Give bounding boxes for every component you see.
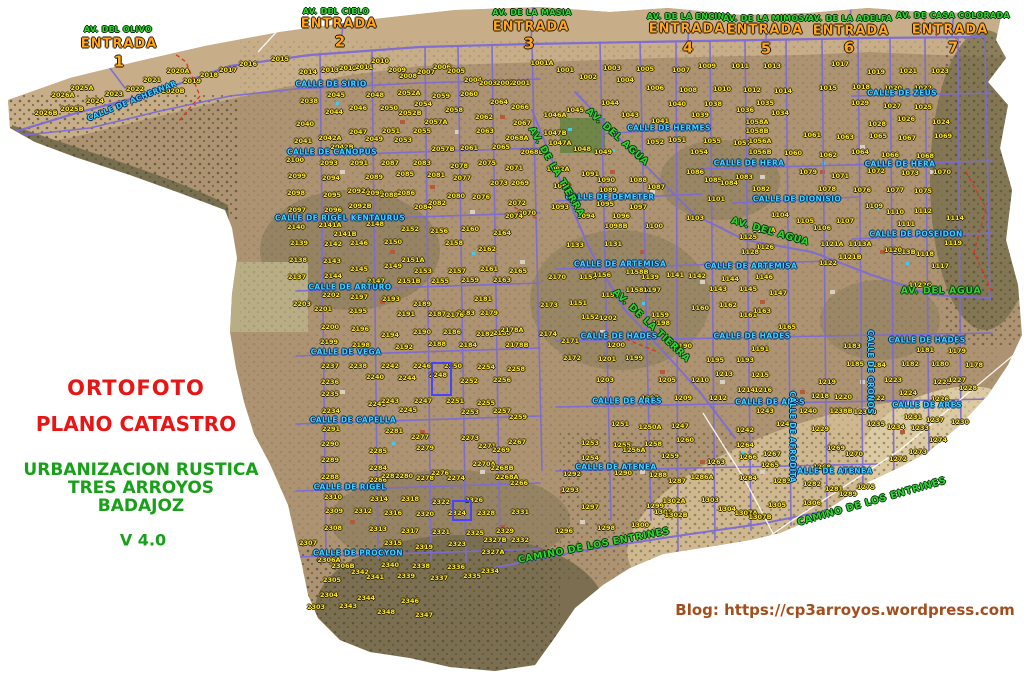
parcel-number: 1151 bbox=[569, 300, 587, 307]
parcel-number: 2322 bbox=[432, 499, 450, 506]
parcel-number: 1181 bbox=[916, 347, 934, 354]
parcel-number: 1036 bbox=[736, 107, 754, 114]
parcel-number: 1178 bbox=[965, 362, 983, 369]
street-name-label: CALLE DE CRONOS bbox=[866, 330, 874, 414]
parcel-number: 1058A bbox=[745, 119, 768, 126]
parcel-number: 1133 bbox=[566, 242, 584, 249]
parcel-number: 2137 bbox=[288, 274, 306, 281]
parcel-number: 1300 bbox=[631, 522, 649, 529]
street-name-label: CALLE DE ZEUS bbox=[867, 89, 937, 97]
parcel-number: 2083 bbox=[413, 160, 431, 167]
parcel-number: 1165 bbox=[778, 324, 796, 331]
parcel-number: 1019 bbox=[867, 69, 885, 76]
parcel-number: 1073 bbox=[901, 170, 919, 177]
parcel-number: 1029 bbox=[851, 100, 869, 107]
parcel-number: 1289 bbox=[839, 491, 857, 498]
parcel-number: 2019 bbox=[183, 78, 201, 85]
parcel-number: 2303 bbox=[307, 604, 325, 611]
parcel-number: 2076 bbox=[472, 194, 490, 201]
parcel-number: 1083 bbox=[735, 174, 753, 181]
parcel-number: 1047B bbox=[543, 130, 566, 137]
parcel-number: 1095 bbox=[596, 201, 614, 208]
parcel-number: 1234 bbox=[887, 424, 905, 431]
parcel-number: 2255 bbox=[477, 400, 495, 407]
parcel-number: 1003 bbox=[603, 65, 621, 72]
parcel-number: 1197 bbox=[643, 287, 661, 294]
parcel-number: 1056B bbox=[748, 149, 771, 156]
parcel-number: 1082 bbox=[752, 186, 770, 193]
parcel-number: 2017 bbox=[219, 67, 237, 74]
street-name-label: CALLE DE VEGA bbox=[311, 348, 382, 356]
parcel-number: 2054 bbox=[414, 101, 432, 108]
parcel-number: 2331 bbox=[511, 509, 529, 516]
parcel-number: 2057A bbox=[424, 119, 447, 126]
parcel-number: 1210 bbox=[691, 377, 709, 384]
parcel-number: 2327B bbox=[483, 537, 506, 544]
parcel-number: 1191 bbox=[751, 346, 769, 353]
parcel-number: 1201 bbox=[598, 356, 616, 363]
parcel-number: 1199 bbox=[625, 355, 643, 362]
parcel-number: 2289 bbox=[321, 457, 339, 464]
street-name-label: CALLE DE AFRODITA bbox=[788, 391, 796, 483]
parcel-number: 1296 bbox=[555, 528, 573, 535]
parcel-number: 2058 bbox=[445, 107, 463, 114]
parcel-number: 1076 bbox=[853, 187, 871, 194]
parcel-number: 2184 bbox=[459, 342, 477, 349]
street-name-label: CALLE DE ATENEA bbox=[791, 467, 872, 475]
parcel-number: 1034 bbox=[771, 110, 789, 117]
parcel-number: 2188 bbox=[428, 341, 446, 348]
parcel-number: 1237 bbox=[926, 417, 944, 424]
parcel-number: 1253 bbox=[581, 440, 599, 447]
parcel-number: 2320 bbox=[416, 511, 434, 518]
parcel-number: 2151B bbox=[397, 278, 420, 285]
entrance-label: ENTRADA bbox=[493, 21, 570, 34]
street-name-label: CALLE DE ARTEMISA bbox=[574, 260, 666, 268]
parcel-number: 1039 bbox=[691, 112, 709, 119]
parcel-number: 2098 bbox=[287, 190, 305, 197]
entrance-avenue-name: AV. DE LA ENCINA bbox=[647, 13, 731, 21]
parcel-number: 2141B bbox=[333, 231, 356, 238]
parcel-number: 2091 bbox=[350, 160, 368, 167]
entrance-label: ENTRADA bbox=[301, 18, 378, 31]
parcel-number: 1078 bbox=[818, 186, 836, 193]
parcel-number: 2197 bbox=[350, 294, 368, 301]
parcel-number: 2149 bbox=[384, 263, 402, 270]
parcel-number: 2048 bbox=[366, 92, 384, 99]
parcel-number: 2151A bbox=[401, 257, 424, 264]
parcel-number: 2100 bbox=[286, 157, 304, 164]
parcel-number: 2139 bbox=[290, 240, 308, 247]
parcel-number: 2343 bbox=[339, 603, 357, 610]
parcel-number: 2336 bbox=[447, 564, 465, 571]
parcel-number: 1160 bbox=[691, 305, 709, 312]
parcel-number: 1218 bbox=[811, 393, 829, 400]
parcel-number: 2335 bbox=[463, 573, 481, 580]
parcel-number: 2199 bbox=[320, 339, 338, 346]
parcel-number: 1269 bbox=[827, 445, 845, 452]
parcel-number: 1112 bbox=[914, 208, 932, 215]
parcel-number: 2312 bbox=[354, 508, 372, 515]
parcel-number: 1025 bbox=[914, 104, 932, 111]
parcel-number: 1265 bbox=[761, 462, 779, 469]
parcel-number: 2044 bbox=[325, 109, 343, 116]
parcel-number: 2150 bbox=[384, 239, 402, 246]
parcel-number: 1064 bbox=[851, 149, 869, 156]
parcel-number: 2274 bbox=[447, 475, 465, 482]
parcel-number: 2023 bbox=[105, 91, 123, 98]
parcel-number: 1086 bbox=[686, 169, 704, 176]
parcel-number: 1304 bbox=[718, 506, 736, 513]
parcel-number: 1306 bbox=[803, 500, 821, 507]
street-name-label: CALLE DE ARTURO bbox=[308, 283, 391, 291]
parcel-number: 2244 bbox=[398, 375, 416, 382]
parcel-number: 1302A bbox=[662, 498, 685, 505]
entrance-avenue-name: AV. DEL CIELO bbox=[303, 8, 369, 16]
parcel-number: 2304 bbox=[320, 592, 338, 599]
parcel-number: 2067 bbox=[513, 120, 531, 127]
parcel-number: 2041 bbox=[294, 138, 312, 145]
parcel-number: 2086 bbox=[397, 190, 415, 197]
parcel-number: 2191 bbox=[397, 311, 415, 318]
street-name-label: CALLE DE HERA bbox=[865, 160, 936, 168]
parcel-number: 2269 bbox=[492, 447, 510, 454]
entrance-number: 7 bbox=[948, 41, 958, 56]
parcel-number: 2281 bbox=[385, 428, 403, 435]
parcel-number: 1298 bbox=[597, 525, 615, 532]
parcel-number: 1096 bbox=[612, 213, 630, 220]
parcel-number: 1179 bbox=[948, 348, 966, 355]
parcel-number: 1048 bbox=[573, 146, 591, 153]
parcel-number: 1038 bbox=[704, 101, 722, 108]
parcel-number: 2237 bbox=[321, 363, 339, 370]
parcel-number: 2142 bbox=[324, 241, 342, 248]
parcel-number: 2176 bbox=[446, 312, 464, 319]
parcel-number: 2161 bbox=[480, 266, 498, 273]
parcel-number: 1159 bbox=[651, 312, 669, 319]
parcel-number: 2285 bbox=[369, 448, 387, 455]
parcel-number: 2157 bbox=[448, 268, 466, 275]
parcel-number: 2309 bbox=[325, 508, 343, 515]
parcel-number: 2339 bbox=[397, 573, 415, 580]
parcel-number: 1145 bbox=[739, 286, 757, 293]
parcel-number: 1273 bbox=[909, 449, 927, 456]
parcel-number: 2141A bbox=[318, 222, 341, 229]
parcel-number: 1060 bbox=[784, 150, 802, 157]
parcel-number: 1122 bbox=[819, 260, 837, 267]
street-name-label: CALLE DE ATENEA bbox=[575, 463, 656, 471]
street-name-label: CALLE DE RIGEL KENTAURUS bbox=[275, 214, 405, 222]
parcel-number: 2314 bbox=[370, 496, 388, 503]
parcel-number: 2025B bbox=[60, 106, 83, 113]
parcel-number: 2307 bbox=[299, 540, 317, 547]
parcel-number: 2145 bbox=[350, 266, 368, 273]
parcel-number: 1141 bbox=[666, 272, 684, 279]
parcel-number: 1264 bbox=[736, 442, 754, 449]
parcel-number: 2323 bbox=[448, 541, 466, 548]
parcel-number: 1017 bbox=[831, 61, 849, 68]
parcel-number: 1214 bbox=[737, 387, 755, 394]
parcel-number: 1243 bbox=[756, 408, 774, 415]
parcel-number: 2152 bbox=[401, 226, 419, 233]
parcel-number: 1098B bbox=[604, 223, 627, 230]
parcel-number: 1103 bbox=[686, 215, 704, 222]
street-name-label: CALLE DE CAPELLA bbox=[310, 416, 396, 424]
parcel-number: 2075 bbox=[478, 160, 496, 167]
parcel-number: 2159 bbox=[461, 277, 479, 284]
parcel-number: 1088 bbox=[629, 177, 647, 184]
parcel-number: 1023 bbox=[931, 68, 949, 75]
parcel-number: 2266 bbox=[510, 480, 528, 487]
parcel-number: 1055 bbox=[703, 138, 721, 145]
parcel-number: 2178A bbox=[500, 327, 523, 334]
parcel-number: 1163 bbox=[753, 308, 771, 315]
parcel-number: 1105 bbox=[796, 218, 814, 225]
parcel-number: 2245 bbox=[399, 407, 417, 414]
parcel-number: 1043 bbox=[621, 112, 639, 119]
parcel-number: 2284 bbox=[369, 465, 387, 472]
parcel-number: 2291 bbox=[322, 426, 340, 433]
parcel-number: 2026A bbox=[51, 92, 74, 99]
parcel-number: 1200 bbox=[607, 342, 625, 349]
parcel-number: 2021 bbox=[143, 77, 161, 84]
parcel-number: 1011 bbox=[731, 63, 749, 70]
parcel-number: 1202 bbox=[599, 315, 617, 322]
parcel-number: 1046A bbox=[543, 112, 566, 119]
parcel-number: 1209 bbox=[674, 395, 692, 402]
parcel-number: 2153 bbox=[414, 268, 432, 275]
parcel-number: 1274 bbox=[929, 437, 947, 444]
parcel-number: 1259 bbox=[661, 453, 679, 460]
parcel-number: 2095 bbox=[323, 192, 341, 199]
parcel-number: 1162 bbox=[719, 302, 737, 309]
street-name-label: CALLE DE HADES bbox=[714, 332, 791, 340]
parcel-number: 1104 bbox=[771, 212, 789, 219]
street-name-label: CALLE DE HADES bbox=[889, 336, 966, 344]
parcel-number: 1069 bbox=[934, 133, 952, 140]
parcel-number: 2310 bbox=[324, 494, 342, 501]
parcel-number: 1297 bbox=[581, 504, 599, 511]
parcel-number: 2316 bbox=[384, 510, 402, 517]
entrance-number: 4 bbox=[683, 41, 693, 56]
parcel-number: 2018 bbox=[200, 72, 218, 79]
parcel-number: 2042A bbox=[318, 135, 341, 142]
parcel-number: 1062 bbox=[819, 152, 837, 159]
street-name-label: CALLE DE HERA bbox=[714, 159, 785, 167]
parcel-number: 1056A bbox=[748, 138, 771, 145]
parcel-number: 2049 bbox=[365, 136, 383, 143]
parcel-number: 2344 bbox=[357, 595, 375, 602]
street-name-label: CALLE DE DIONISIO bbox=[753, 195, 841, 203]
parcel-number: 1229 bbox=[811, 426, 829, 433]
parcel-number: 2010 bbox=[371, 58, 389, 65]
parcel-number: 2158 bbox=[445, 240, 463, 247]
parcel-number: 2073 bbox=[490, 180, 508, 187]
parcel-number: 2252 bbox=[460, 378, 478, 385]
parcel-number: 1282 bbox=[803, 481, 821, 488]
parcel-number: 1113A bbox=[848, 241, 871, 248]
parcel-number: 2143 bbox=[323, 258, 341, 265]
parcel-number: 2325 bbox=[466, 530, 484, 537]
street-name-label: CALLE DE ARTEMISA bbox=[705, 262, 797, 270]
parcel-number: 1260 bbox=[676, 437, 694, 444]
street-name-label: CALLE DE ARES bbox=[592, 397, 662, 405]
parcel-number: 1247 bbox=[671, 423, 689, 430]
parcel-number: 2347 bbox=[415, 612, 433, 619]
parcel-number: 2162 bbox=[478, 246, 496, 253]
parcel-number: 1008 bbox=[679, 87, 697, 94]
parcel-number: 1097 bbox=[629, 204, 647, 211]
parcel-number: 2087 bbox=[381, 160, 399, 167]
parcel-number: 2163 bbox=[493, 277, 511, 284]
entrance-label: ENTRADA bbox=[813, 25, 890, 38]
parcel-number: 1077 bbox=[886, 187, 904, 194]
parcel-number: 2164 bbox=[493, 230, 511, 237]
avenue-name-label: CAMINO DE LOS ENTRINES bbox=[517, 527, 671, 566]
avenue-name-label: AV. DE LA TIERRA bbox=[610, 288, 691, 365]
parcel-number: 1182 bbox=[901, 361, 919, 368]
parcel-number: 1216 bbox=[754, 387, 772, 394]
parcel-number: 1305 bbox=[768, 502, 786, 509]
parcel-number: 1231 bbox=[904, 414, 922, 421]
highlighted-parcel-box bbox=[452, 500, 472, 521]
parcel-number: 1001A bbox=[530, 60, 553, 67]
street-name-label: CALLE DE HADES bbox=[581, 332, 658, 340]
parcel-number: 2259 bbox=[509, 414, 527, 421]
parcel-number: 2065 bbox=[492, 144, 510, 151]
parcel-number: 1107 bbox=[836, 218, 854, 225]
parcel-number: 1288 bbox=[649, 472, 667, 479]
parcel-number: 2156 bbox=[430, 228, 448, 235]
parcel-number: 1212 bbox=[709, 395, 727, 402]
street-name-label: CALLE DE POSEIDON bbox=[869, 230, 962, 238]
parcel-number: 1267 bbox=[763, 451, 781, 458]
parcel-number: 2238 bbox=[349, 363, 367, 370]
parcel-number: 2321 bbox=[432, 529, 450, 536]
parcel-number: 2003 bbox=[479, 80, 497, 87]
parcel-number: 1111 bbox=[897, 221, 915, 228]
parcel-number: 2201 bbox=[314, 306, 332, 313]
street-name-label: CALLE DE PROCYON bbox=[313, 549, 403, 557]
parcel-number: 1013 bbox=[763, 63, 781, 70]
parcel-number: 2186 bbox=[443, 329, 461, 336]
parcel-number: 1044 bbox=[601, 100, 619, 107]
parcel-number: 2055 bbox=[413, 128, 431, 135]
map-label-layer: 2026A2026B2025A2025B20242023202220212020… bbox=[0, 0, 1024, 675]
parcel-number: 1006 bbox=[646, 85, 664, 92]
parcel-number: 1087 bbox=[647, 184, 665, 191]
parcel-number: 2203 bbox=[293, 301, 311, 308]
parcel-number: 2280 bbox=[395, 473, 413, 480]
parcel-number: 2052B bbox=[398, 110, 421, 117]
parcel-number: 2071 bbox=[505, 165, 523, 172]
parcel-number: 1293 bbox=[561, 487, 579, 494]
parcel-number: 1002 bbox=[579, 74, 597, 81]
parcel-number: 2242 bbox=[381, 363, 399, 370]
street-name-label: CALLE DE CANOPUS bbox=[287, 148, 377, 156]
parcel-number: 1063 bbox=[836, 134, 854, 141]
parcel-number: 2172 bbox=[563, 355, 581, 362]
parcel-number: 1027 bbox=[883, 103, 901, 110]
parcel-number: 2315 bbox=[384, 540, 402, 547]
parcel-number: 2052A bbox=[397, 90, 420, 97]
parcel-number: 2061 bbox=[460, 145, 478, 152]
parcel-number: 1012 bbox=[743, 87, 761, 94]
parcel-number: 2014 bbox=[299, 69, 317, 76]
parcel-number: 1228 bbox=[959, 385, 977, 392]
parcel-number: 1014 bbox=[774, 88, 792, 95]
parcel-number: 1004 bbox=[616, 77, 634, 84]
entrance-number: 3 bbox=[524, 37, 534, 52]
parcel-number: 2341 bbox=[366, 574, 384, 581]
parcel-number: 1005 bbox=[636, 66, 654, 73]
parcel-number: 2040 bbox=[296, 121, 314, 128]
entrance-label: ENTRADA bbox=[649, 23, 726, 36]
parcel-number: 1139 bbox=[641, 274, 659, 281]
parcel-number: 2093 bbox=[320, 160, 338, 167]
entrance-number: 1 bbox=[114, 55, 124, 70]
parcel-number: 1303 bbox=[701, 497, 719, 504]
street-name-label: CALLE DE ARES bbox=[892, 401, 962, 409]
parcel-number: 2155 bbox=[431, 278, 449, 285]
parcel-number: 2234 bbox=[322, 408, 340, 415]
parcel-number: 1090 bbox=[597, 177, 615, 184]
parcel-number: 1183 bbox=[843, 343, 861, 350]
parcel-number: 1238B bbox=[829, 408, 852, 415]
parcel-number: 1143 bbox=[709, 286, 727, 293]
parcel-number: 2243 bbox=[381, 398, 399, 405]
parcel-number: 2015 bbox=[271, 56, 289, 63]
entrance-number: 2 bbox=[335, 35, 345, 50]
parcel-number: 2317 bbox=[401, 528, 419, 535]
parcel-number: 1028 bbox=[868, 121, 886, 128]
parcel-number: 1106 bbox=[813, 225, 831, 232]
parcel-number: 1093 bbox=[551, 204, 569, 211]
parcel-number: 2026B bbox=[34, 110, 57, 117]
entrance-avenue-name: AV. DE LA MASIA bbox=[492, 9, 571, 17]
parcel-number: 1220 bbox=[834, 394, 852, 401]
entrance-label: ENTRADA bbox=[81, 38, 158, 51]
parcel-number: 1109 bbox=[865, 203, 883, 210]
parcel-number: 1061 bbox=[803, 132, 821, 139]
parcel-number: 1026 bbox=[897, 116, 915, 123]
street-name-label: CALLE DE HERMES bbox=[627, 124, 711, 132]
parcel-number: 2318 bbox=[401, 496, 419, 503]
parcel-number: 2313 bbox=[369, 526, 387, 533]
parcel-number: 2001 bbox=[512, 80, 530, 87]
parcel-number: 2193 bbox=[382, 296, 400, 303]
parcel-number: 2253 bbox=[461, 409, 479, 416]
parcel-number: 2138 bbox=[289, 257, 307, 264]
parcel-number: 1203 bbox=[596, 377, 614, 384]
entrance-avenue-name: AV. DE CASA COLORADA bbox=[896, 12, 1010, 20]
parcel-number: 1302B bbox=[664, 512, 687, 519]
parcel-number: 1205 bbox=[658, 377, 676, 384]
parcel-number: 1286A bbox=[690, 474, 713, 481]
parcel-number: 2082 bbox=[428, 200, 446, 207]
parcel-number: 1024 bbox=[932, 119, 950, 126]
parcel-number: 2305 bbox=[323, 577, 341, 584]
parcel-number: 1114 bbox=[946, 215, 964, 222]
parcel-number: 2288 bbox=[321, 474, 339, 481]
parcel-number: 2057B bbox=[431, 146, 454, 153]
parcel-number: 1147 bbox=[769, 290, 787, 297]
parcel-number: 2192 bbox=[395, 344, 413, 351]
parcel-number: 2277 bbox=[411, 434, 429, 441]
parcel-number: 2085 bbox=[396, 171, 414, 178]
parcel-number: 1156 bbox=[593, 272, 611, 279]
parcel-number: 2194 bbox=[381, 332, 399, 339]
